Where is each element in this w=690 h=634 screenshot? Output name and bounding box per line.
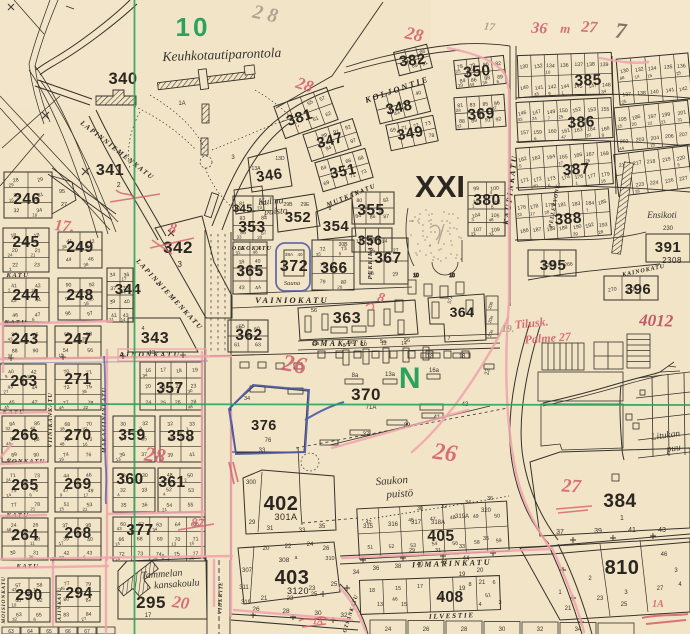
svg-text:32: 32 [537, 627, 544, 633]
svg-text:17: 17 [483, 20, 496, 33]
svg-text:65: 65 [36, 612, 42, 618]
svg-text:369: 369 [467, 105, 495, 124]
svg-text:301A: 301A [274, 512, 297, 522]
svg-text:270: 270 [64, 427, 91, 444]
svg-text:39: 39 [594, 528, 602, 535]
svg-text:45: 45 [9, 400, 15, 406]
svg-text:248: 248 [66, 287, 93, 304]
svg-text:360: 360 [116, 471, 143, 488]
svg-text:199: 199 [661, 112, 671, 119]
svg-text:77: 77 [11, 502, 18, 509]
svg-text:63: 63 [8, 629, 14, 634]
svg-text:352: 352 [285, 209, 312, 226]
svg-text:21: 21 [261, 596, 268, 602]
svg-text:317: 317 [411, 520, 422, 526]
svg-text:50: 50 [187, 473, 194, 480]
svg-text:137: 137 [574, 62, 583, 68]
svg-text:N: N [399, 362, 421, 395]
svg-text:AJINKATU: AJINKATU [57, 587, 63, 622]
svg-text:20: 20 [170, 592, 191, 613]
svg-text:316: 316 [388, 522, 399, 528]
svg-text:26: 26 [323, 546, 330, 552]
svg-text:15: 15 [401, 602, 407, 608]
svg-text:15: 15 [395, 586, 401, 592]
svg-text:136: 136 [560, 63, 569, 69]
svg-text:40: 40 [124, 299, 131, 306]
svg-text:135: 135 [664, 64, 673, 70]
svg-text:34: 34 [109, 272, 116, 279]
svg-text:54: 54 [63, 348, 69, 354]
svg-text:53: 53 [188, 488, 194, 494]
svg-text:33: 33 [189, 421, 195, 427]
svg-text:14: 14 [120, 317, 126, 322]
svg-text:367: 367 [374, 250, 401, 267]
svg-text:138: 138 [586, 62, 595, 69]
svg-text:puistö: puistö [385, 487, 414, 501]
svg-text:184: 184 [585, 201, 594, 207]
svg-text:78: 78 [428, 133, 435, 140]
svg-text:24: 24 [145, 400, 151, 406]
svg-text:17: 17 [417, 584, 423, 590]
svg-text:319A: 319A [455, 514, 469, 520]
svg-text:47: 47 [561, 135, 566, 140]
svg-text:21: 21 [565, 606, 572, 612]
svg-text:7: 7 [448, 336, 451, 342]
svg-text:13A: 13A [252, 166, 262, 172]
svg-text:391: 391 [655, 239, 682, 256]
svg-text:160: 160 [548, 129, 557, 135]
svg-text:4: 4 [478, 602, 481, 608]
svg-text:20: 20 [477, 568, 484, 574]
svg-text:263: 263 [10, 373, 37, 390]
svg-text:27: 27 [560, 475, 583, 497]
svg-text:21: 21 [30, 506, 36, 511]
svg-text:46: 46 [392, 596, 399, 603]
svg-text:28: 28 [142, 442, 168, 469]
svg-text:25: 25 [311, 592, 318, 598]
svg-text:6: 6 [492, 580, 495, 586]
svg-text:372: 372 [280, 258, 308, 275]
svg-text:43: 43 [239, 285, 245, 291]
svg-text:366: 366 [320, 260, 347, 277]
svg-text:355: 355 [357, 202, 384, 219]
svg-text:2: 2 [117, 182, 121, 189]
svg-text:3a: 3a [313, 341, 320, 347]
svg-text:10: 10 [545, 70, 551, 75]
svg-text:36: 36 [487, 496, 493, 502]
svg-text:8a: 8a [352, 373, 359, 379]
svg-text:3120: 3120 [287, 586, 309, 596]
svg-text:13: 13 [171, 541, 177, 546]
svg-text:136: 136 [677, 63, 686, 70]
svg-text:58: 58 [474, 540, 480, 546]
svg-text:38: 38 [395, 564, 402, 570]
svg-text:157: 157 [520, 130, 529, 137]
svg-text:244: 244 [12, 287, 39, 304]
svg-text:32: 32 [120, 488, 126, 494]
svg-text:18: 18 [427, 354, 434, 360]
svg-text:22: 22 [83, 405, 88, 410]
svg-text:23: 23 [287, 596, 294, 602]
svg-text:35: 35 [483, 536, 489, 542]
svg-text:66: 66 [65, 629, 71, 634]
svg-text:377: 377 [126, 522, 153, 539]
svg-text:28: 28 [456, 108, 462, 113]
svg-text:359: 359 [118, 427, 145, 444]
svg-text:19.: 19. [502, 324, 515, 335]
svg-text:380: 380 [473, 192, 500, 209]
svg-text:51: 51 [63, 502, 69, 508]
svg-text:271: 271 [64, 371, 91, 388]
svg-text:21: 21 [479, 580, 486, 586]
svg-text:39: 39 [573, 231, 578, 236]
svg-text:341: 341 [96, 162, 124, 179]
svg-text:353: 353 [238, 219, 265, 236]
svg-text:3: 3 [178, 260, 183, 269]
svg-text:29: 29 [249, 520, 256, 526]
svg-text:14: 14 [401, 341, 407, 347]
svg-text:13a: 13a [385, 372, 396, 378]
svg-text:33: 33 [459, 544, 465, 550]
svg-text:Sauna: Sauna [284, 280, 300, 287]
svg-text:56: 56 [87, 348, 93, 355]
svg-text:49: 49 [473, 514, 479, 520]
svg-text:36: 36 [348, 340, 354, 346]
svg-text:MOISIONKATU: MOISIONKATU [1, 576, 7, 625]
svg-text:320: 320 [481, 508, 492, 514]
svg-text:47: 47 [34, 312, 41, 319]
svg-text:a: a [295, 555, 298, 561]
svg-text:396: 396 [625, 281, 652, 298]
svg-text:148: 148 [602, 82, 611, 88]
svg-text:56: 56 [311, 308, 317, 314]
svg-text:32: 32 [441, 504, 447, 510]
svg-text:32: 32 [167, 421, 174, 428]
svg-text:23: 23 [309, 586, 316, 592]
svg-text:364: 364 [450, 304, 475, 320]
svg-text:42: 42 [63, 551, 69, 557]
svg-text:OMAKATU: OMAKATU [312, 339, 368, 348]
svg-text:315: 315 [363, 524, 374, 530]
svg-text:230: 230 [663, 226, 674, 232]
svg-text:10: 10 [413, 273, 419, 279]
svg-text:17.: 17. [54, 217, 76, 236]
svg-text:32: 32 [14, 208, 20, 214]
svg-text:74: 74 [63, 452, 70, 459]
svg-text:32: 32 [6, 426, 11, 431]
svg-text:265: 265 [11, 477, 38, 494]
svg-text:67: 67 [84, 629, 90, 634]
svg-text:345: 345 [233, 203, 253, 215]
svg-text:54: 54 [166, 503, 172, 510]
svg-text:30B: 30B [339, 242, 349, 248]
svg-text:1: 1 [620, 515, 624, 522]
svg-text:169: 169 [600, 151, 609, 158]
svg-text:1A: 1A [652, 599, 664, 610]
svg-text:51: 51 [367, 545, 373, 551]
svg-text:KATU: KATU [6, 272, 30, 279]
svg-text:24: 24 [385, 627, 392, 633]
svg-text:218: 218 [647, 159, 656, 166]
svg-text:310: 310 [325, 556, 334, 562]
svg-text:388: 388 [554, 210, 582, 229]
svg-text:59: 59 [496, 538, 502, 545]
svg-text:m: m [560, 21, 571, 37]
svg-text:41: 41 [189, 452, 196, 459]
svg-text:197: 197 [648, 113, 657, 120]
svg-text:30: 30 [499, 627, 506, 633]
svg-text:300: 300 [246, 480, 257, 486]
svg-text:22: 22 [285, 544, 292, 550]
svg-text:17: 17 [160, 367, 166, 374]
svg-text:21: 21 [82, 507, 88, 512]
svg-text:31: 31 [267, 526, 274, 532]
svg-text:36: 36 [530, 19, 548, 37]
svg-text:13: 13 [377, 602, 383, 608]
svg-text:139: 139 [600, 62, 609, 68]
svg-text:43: 43 [117, 526, 123, 531]
svg-text:363: 363 [333, 310, 361, 327]
svg-text:28: 28 [461, 627, 468, 633]
svg-text:193: 193 [599, 222, 608, 229]
svg-text:183: 183 [571, 201, 580, 208]
svg-text:269: 269 [64, 476, 91, 493]
svg-text:19: 19 [32, 212, 38, 217]
svg-text:140: 140 [650, 89, 659, 96]
svg-text:46: 46 [661, 552, 668, 558]
svg-text:24: 24 [307, 542, 314, 548]
svg-text:25: 25 [331, 582, 338, 588]
svg-text:376: 376 [251, 418, 277, 434]
svg-text:36: 36 [141, 502, 148, 509]
svg-text:405: 405 [427, 528, 454, 545]
svg-text:13D: 13D [275, 156, 285, 162]
svg-text:249: 249 [66, 239, 93, 256]
svg-text:23: 23 [34, 262, 40, 269]
svg-text:16a: 16a [429, 368, 440, 374]
svg-text:4: 4 [141, 326, 144, 332]
svg-text:88: 88 [12, 348, 18, 354]
svg-text:386: 386 [567, 113, 595, 131]
svg-text:8: 8 [468, 582, 471, 588]
svg-text:31: 31 [677, 117, 683, 122]
svg-text:46: 46 [88, 257, 94, 263]
svg-text:319: 319 [241, 600, 252, 606]
svg-text:294: 294 [65, 585, 92, 602]
svg-text:12: 12 [381, 341, 387, 347]
svg-text:134: 134 [546, 63, 555, 70]
svg-text:307: 307 [242, 568, 253, 574]
svg-text:266: 266 [11, 427, 38, 444]
svg-text:2308: 2308 [662, 256, 682, 265]
svg-text:1A: 1A [178, 101, 185, 107]
svg-text:243: 243 [11, 331, 38, 348]
svg-text:20: 20 [337, 285, 343, 290]
svg-text:64: 64 [27, 629, 33, 634]
svg-text:XXI: XXI [415, 169, 465, 204]
svg-text:33: 33 [299, 528, 306, 534]
svg-text:4012: 4012 [638, 310, 674, 330]
svg-text:245: 245 [12, 234, 39, 251]
svg-text:22: 22 [12, 262, 18, 268]
svg-text:69: 69 [157, 536, 163, 542]
svg-text:34: 34 [575, 627, 582, 633]
svg-text:Saukon: Saukon [375, 474, 409, 488]
svg-text:165: 165 [559, 154, 568, 161]
svg-text:247: 247 [64, 331, 91, 348]
svg-text:29E: 29E [301, 202, 311, 208]
svg-text:224: 224 [650, 180, 659, 187]
svg-text:65: 65 [46, 629, 52, 634]
svg-text:318A: 318A [431, 520, 445, 526]
svg-text:35: 35 [120, 502, 126, 509]
svg-text:26: 26 [423, 627, 430, 633]
svg-text:290: 290 [15, 587, 42, 604]
svg-text:343: 343 [141, 330, 169, 347]
svg-text:OIKOKATU: OIKOKATU [232, 246, 272, 252]
svg-text:83: 83 [63, 612, 69, 618]
svg-text:43: 43 [86, 550, 92, 556]
svg-text:354: 354 [323, 218, 350, 235]
svg-text:19: 19 [459, 572, 466, 578]
svg-text:27: 27 [61, 202, 67, 208]
svg-text:268: 268 [64, 525, 91, 542]
svg-text:20: 20 [263, 546, 270, 552]
svg-text:18: 18 [459, 354, 466, 360]
svg-text:30: 30 [417, 506, 423, 512]
svg-text:38A: 38A [285, 252, 294, 257]
svg-text:387: 387 [562, 160, 590, 179]
svg-text:VAINIOKATU: VAINIOKATU [255, 295, 329, 305]
svg-text:26: 26 [430, 438, 458, 467]
svg-text:64: 64 [174, 522, 181, 529]
svg-text:43: 43 [658, 527, 666, 534]
svg-text:19: 19 [459, 586, 466, 592]
svg-text:90: 90 [33, 348, 39, 354]
svg-text:52: 52 [388, 544, 394, 551]
svg-text:18: 18 [369, 588, 375, 594]
svg-text:350: 350 [462, 62, 491, 82]
svg-text:35: 35 [319, 524, 326, 530]
svg-text:340: 340 [108, 70, 137, 88]
svg-text:41: 41 [628, 527, 636, 534]
svg-text:167: 167 [586, 152, 595, 158]
svg-text:264: 264 [11, 527, 38, 544]
svg-text:17: 17 [83, 493, 88, 498]
svg-text:55: 55 [238, 324, 245, 331]
svg-text:8: 8 [343, 343, 346, 349]
svg-text:25: 25 [160, 400, 166, 406]
svg-text:puisto: puisto [263, 206, 288, 218]
svg-text:50: 50 [494, 513, 500, 519]
svg-text:VIINIKANKATU: VIINIKANKATU [48, 392, 54, 447]
svg-text:384: 384 [603, 491, 636, 512]
svg-text:810: 810 [605, 557, 640, 579]
svg-text:195: 195 [618, 117, 627, 123]
svg-text:134: 134 [648, 66, 657, 73]
svg-text:79: 79 [319, 279, 325, 285]
svg-text:17: 17 [145, 613, 152, 619]
svg-text:VIHERTIE: VIHERTIE [217, 581, 224, 614]
svg-text:36: 36 [373, 566, 380, 572]
svg-text:84: 84 [86, 612, 92, 618]
svg-text:34: 34 [465, 500, 471, 506]
svg-text:27: 27 [580, 18, 599, 36]
svg-text:19: 19 [192, 367, 198, 373]
svg-text:358: 358 [167, 428, 194, 445]
svg-text:311: 311 [239, 585, 249, 591]
svg-text:207: 207 [679, 132, 688, 138]
svg-text:76: 76 [85, 452, 91, 459]
svg-text:25: 25 [621, 602, 628, 608]
svg-text:ILVESTIE: ILVESTIE [428, 611, 475, 621]
svg-text:308: 308 [279, 557, 290, 564]
svg-text:47: 47 [32, 400, 38, 406]
svg-text:PUKKIKATU: PUKKIKATU [368, 236, 374, 279]
svg-text:150: 150 [559, 108, 568, 114]
svg-text:395: 395 [540, 257, 567, 274]
svg-text:95: 95 [59, 189, 65, 195]
svg-text:76: 76 [265, 438, 272, 444]
svg-text:27: 27 [657, 586, 664, 592]
svg-text:34: 34 [244, 396, 250, 402]
svg-text:3: 3 [498, 600, 501, 606]
svg-text:Ensikoti: Ensikoti [646, 210, 677, 220]
svg-text:361: 361 [158, 474, 185, 491]
svg-text:71A: 71A [366, 405, 377, 411]
svg-text:206: 206 [665, 134, 674, 141]
svg-text:23: 23 [597, 596, 604, 602]
svg-text:155: 155 [601, 107, 610, 113]
svg-text:382: 382 [398, 51, 426, 71]
svg-text:37: 37 [556, 529, 564, 536]
svg-text:370: 370 [351, 385, 381, 404]
svg-text:puu: puu [665, 443, 682, 455]
svg-text:39: 39 [167, 452, 173, 458]
svg-text:357: 357 [156, 380, 183, 397]
svg-text:40: 40 [297, 252, 303, 257]
svg-text:17: 17 [530, 211, 536, 216]
svg-text:10: 10 [361, 342, 367, 348]
svg-text:55: 55 [187, 502, 193, 508]
svg-text:21: 21 [30, 252, 36, 257]
svg-text:34: 34 [353, 570, 360, 576]
svg-text:365: 365 [236, 263, 263, 280]
svg-text:385: 385 [574, 72, 602, 90]
svg-text:344: 344 [115, 281, 142, 298]
svg-text:33: 33 [141, 487, 148, 494]
svg-text:204: 204 [650, 135, 660, 142]
svg-text:138: 138 [637, 90, 646, 96]
svg-text:26: 26 [279, 350, 308, 380]
svg-text:10: 10 [176, 12, 211, 42]
svg-text:246: 246 [13, 191, 40, 208]
svg-text:10: 10 [449, 273, 455, 279]
